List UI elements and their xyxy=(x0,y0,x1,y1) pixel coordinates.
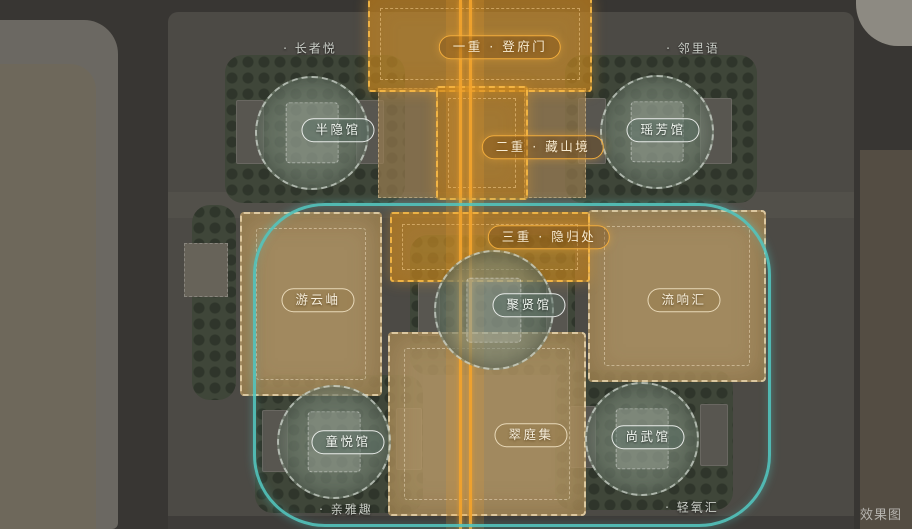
note-zhangzheyue: · 长者悦 xyxy=(283,40,337,57)
pavilion-label-yaofang: 瑶芳馆 xyxy=(626,118,699,142)
axis-label-layer-1: 一重 · 登府门 xyxy=(439,35,561,59)
axis-label-layer-2: 二重 · 藏山境 xyxy=(482,135,604,159)
axis-label-layer-3: 三重 · 隐归处 xyxy=(488,225,610,249)
gate-flank-building-west xyxy=(378,88,438,198)
pavilion-label-shangwu: 尚武馆 xyxy=(611,425,684,449)
pavilion-label-juxian: 聚贤馆 xyxy=(492,293,565,317)
courtyard-label-cuitingji: 翠庭集 xyxy=(494,423,567,447)
courtyard-label-liuxianghui: 流响汇 xyxy=(647,288,720,312)
building-footprint xyxy=(184,243,228,297)
rendering-watermark: 效果图 xyxy=(860,504,902,523)
courtyard-label-youyunxiu: 游云岫 xyxy=(281,288,354,312)
east-parcel xyxy=(860,150,912,529)
note-linliyu: · 邻里语 xyxy=(666,40,720,57)
greenery-west-strip xyxy=(192,205,236,400)
pavilion-label-tongyue: 童悦馆 xyxy=(311,430,384,454)
west-parcel-inner xyxy=(0,64,96,529)
note-qinyaqu: · 亲雅趣 xyxy=(319,501,373,518)
pavilion-label-banyin: 半隐馆 xyxy=(301,118,374,142)
site-plan-rendering: 一重 · 登府门 二重 · 藏山境 三重 · 隐归处 半隐馆 瑶芳馆 聚贤馆 童… xyxy=(0,0,912,529)
note-qingyanghui: · 轻氧汇 xyxy=(665,499,719,516)
